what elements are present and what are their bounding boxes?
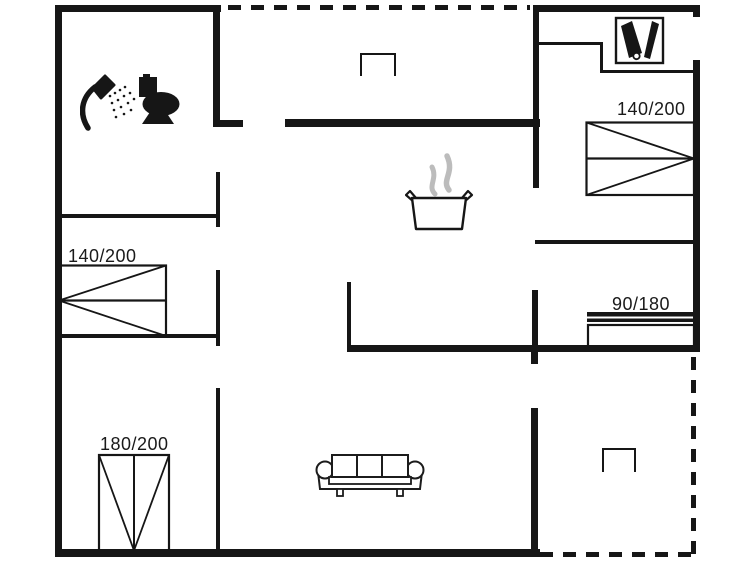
dashed-boundary-bottom [540, 552, 695, 557]
bed-size-label: 180/200 [100, 434, 169, 455]
wall-bedrooms-divider [535, 240, 694, 244]
toilet-icon [134, 74, 182, 126]
dashed-boundary-right [691, 357, 696, 558]
bed-size-label: 140/200 [68, 246, 137, 267]
wall-bedroom-bottom-east [216, 388, 220, 549]
wall-utility-c [600, 70, 693, 73]
wall-living-west [347, 282, 351, 348]
bed-bottom-left-icon [97, 453, 171, 552]
terrace-table-icon [602, 448, 636, 472]
wall-outer-top-right [533, 5, 700, 12]
wall-hall-stub [213, 120, 243, 127]
wall-utility-b [600, 42, 603, 73]
cooking-pot-icon [405, 148, 477, 233]
grill-icon [360, 53, 396, 76]
wall-outer-top-left [55, 5, 221, 12]
wall-right-wing-upper [533, 12, 539, 188]
bed-right-small-icon [585, 310, 697, 350]
wall-bathroom-right-upper [213, 5, 220, 127]
bed-top-right-icon [585, 121, 697, 197]
wall-kitchen-north [285, 119, 540, 127]
wall-terrace-left [531, 408, 538, 549]
wall-outer-right [693, 60, 700, 351]
wall-right-wing-lower [532, 290, 538, 348]
bed-size-label: 140/200 [617, 99, 686, 120]
wall-entry-corner-return [693, 5, 700, 17]
bed-size-label: 90/180 [612, 294, 670, 315]
dashed-boundary-top [228, 5, 530, 10]
cleaning-utility-icon [614, 16, 666, 66]
bed-left-icon [57, 264, 169, 338]
shower-icon [80, 72, 138, 132]
floor-plan: 140/200 140/200 90/180 180/200 [0, 0, 755, 566]
wall-terrace-stub [531, 352, 538, 364]
sofa-icon [315, 450, 425, 500]
wall-bathroom-right-lower [216, 172, 220, 227]
region-kitchen-hall [222, 127, 532, 345]
wall-utility-a [537, 42, 603, 45]
wall-bathroom-bottom [58, 214, 219, 218]
